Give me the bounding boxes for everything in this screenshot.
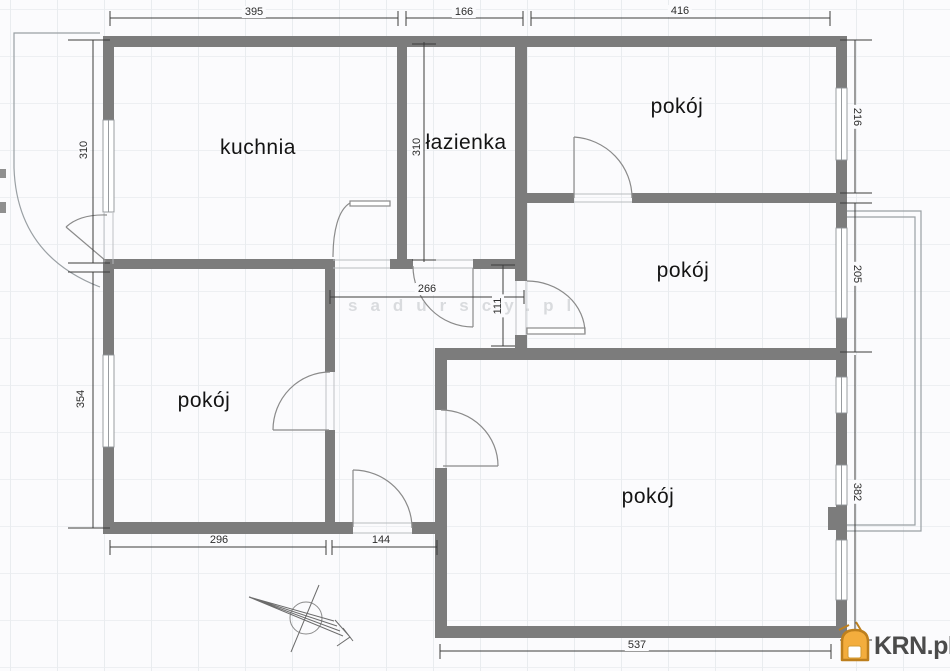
wall-segment — [103, 36, 847, 47]
window — [836, 88, 847, 160]
dimension-label: 310 — [411, 135, 423, 159]
door-pokoj-middle-right — [527, 281, 585, 334]
dimension-label: 266 — [415, 283, 439, 295]
walls — [103, 36, 847, 638]
dimension-label: 354 — [75, 387, 87, 411]
edge-marks — [0, 169, 6, 213]
wall-segment — [103, 259, 333, 269]
dimension-label: 416 — [668, 5, 692, 17]
wall-segment — [103, 36, 114, 120]
wall-segment — [435, 348, 847, 360]
dimension-label: 537 — [625, 639, 649, 651]
window — [103, 120, 114, 212]
dimension-label: 166 — [452, 6, 476, 18]
logo-text: KRN.pl — [874, 632, 950, 661]
door-balcony — [66, 215, 107, 261]
wall-segment — [632, 193, 847, 203]
wall-segment — [836, 505, 847, 540]
room-label-kuchnia: kuchnia — [220, 136, 296, 160]
dimension-label: 216 — [851, 105, 863, 129]
wall-segment — [103, 522, 353, 534]
door-pokoj-bottom — [441, 410, 498, 466]
window — [836, 465, 847, 505]
window — [836, 228, 847, 318]
wall-segment — [325, 259, 335, 372]
window — [103, 355, 114, 447]
window — [836, 540, 847, 600]
compass-north-arrow-icon — [249, 585, 353, 652]
wall-segment — [103, 264, 114, 355]
wall-segment — [435, 626, 847, 638]
room-label-pokoj-bottom-left: pokój — [178, 389, 231, 413]
dimension-lines — [68, 11, 872, 659]
wall-segment — [515, 193, 574, 203]
door-entrance — [353, 470, 412, 528]
dimension-label: 382 — [851, 480, 863, 504]
wall-segment — [325, 430, 335, 534]
floorplan-drawing — [0, 0, 950, 671]
wall-segment — [828, 507, 837, 530]
wall-segment — [435, 356, 447, 410]
wall-segment — [397, 36, 407, 262]
dimension-label: 205 — [851, 262, 863, 286]
room-label-pokoj-middle-right: pokój — [657, 259, 710, 283]
room-label-pokoj-top-right: pokój — [651, 95, 704, 119]
room-label-lazienka: łazienka — [425, 131, 506, 155]
dimension-label: 144 — [369, 534, 393, 546]
dimension-label: 296 — [207, 534, 231, 546]
room-label-pokoj-bottom: pokój — [622, 485, 675, 509]
krn-house-icon — [839, 622, 868, 660]
wall-segment — [515, 36, 527, 281]
door-pokoj-bottom-left — [273, 372, 330, 430]
door-kuchnia — [333, 201, 390, 257]
floorplan-canvas: sadurscy.pl — [0, 0, 950, 671]
dimension-label: 111 — [492, 295, 504, 318]
wall-segment — [103, 447, 114, 534]
wall-segment — [836, 36, 847, 88]
dimension-label: 395 — [242, 6, 266, 18]
door-pokoj-top-right — [574, 137, 632, 198]
door-thresholds — [104, 194, 632, 533]
wall-segment — [836, 413, 847, 465]
dimension-label: 310 — [78, 138, 90, 162]
window — [836, 377, 847, 413]
wall-segment — [836, 318, 847, 377]
